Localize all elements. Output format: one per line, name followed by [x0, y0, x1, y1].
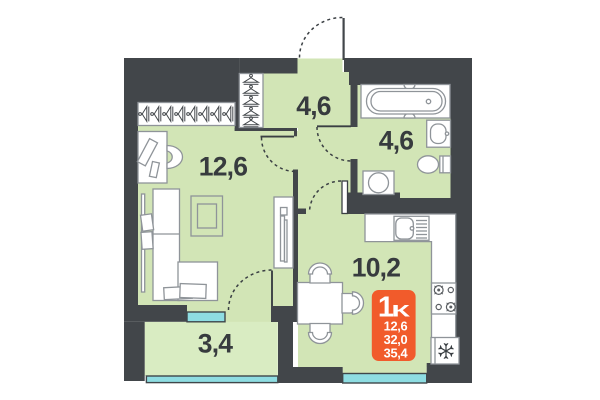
svg-text:10,2: 10,2 — [352, 253, 400, 283]
svg-text:35,4: 35,4 — [384, 346, 409, 361]
svg-text:3,4: 3,4 — [198, 329, 234, 359]
svg-text:12,6: 12,6 — [199, 152, 247, 182]
svg-text:4,6: 4,6 — [296, 91, 331, 121]
svg-text:4,6: 4,6 — [379, 126, 414, 156]
